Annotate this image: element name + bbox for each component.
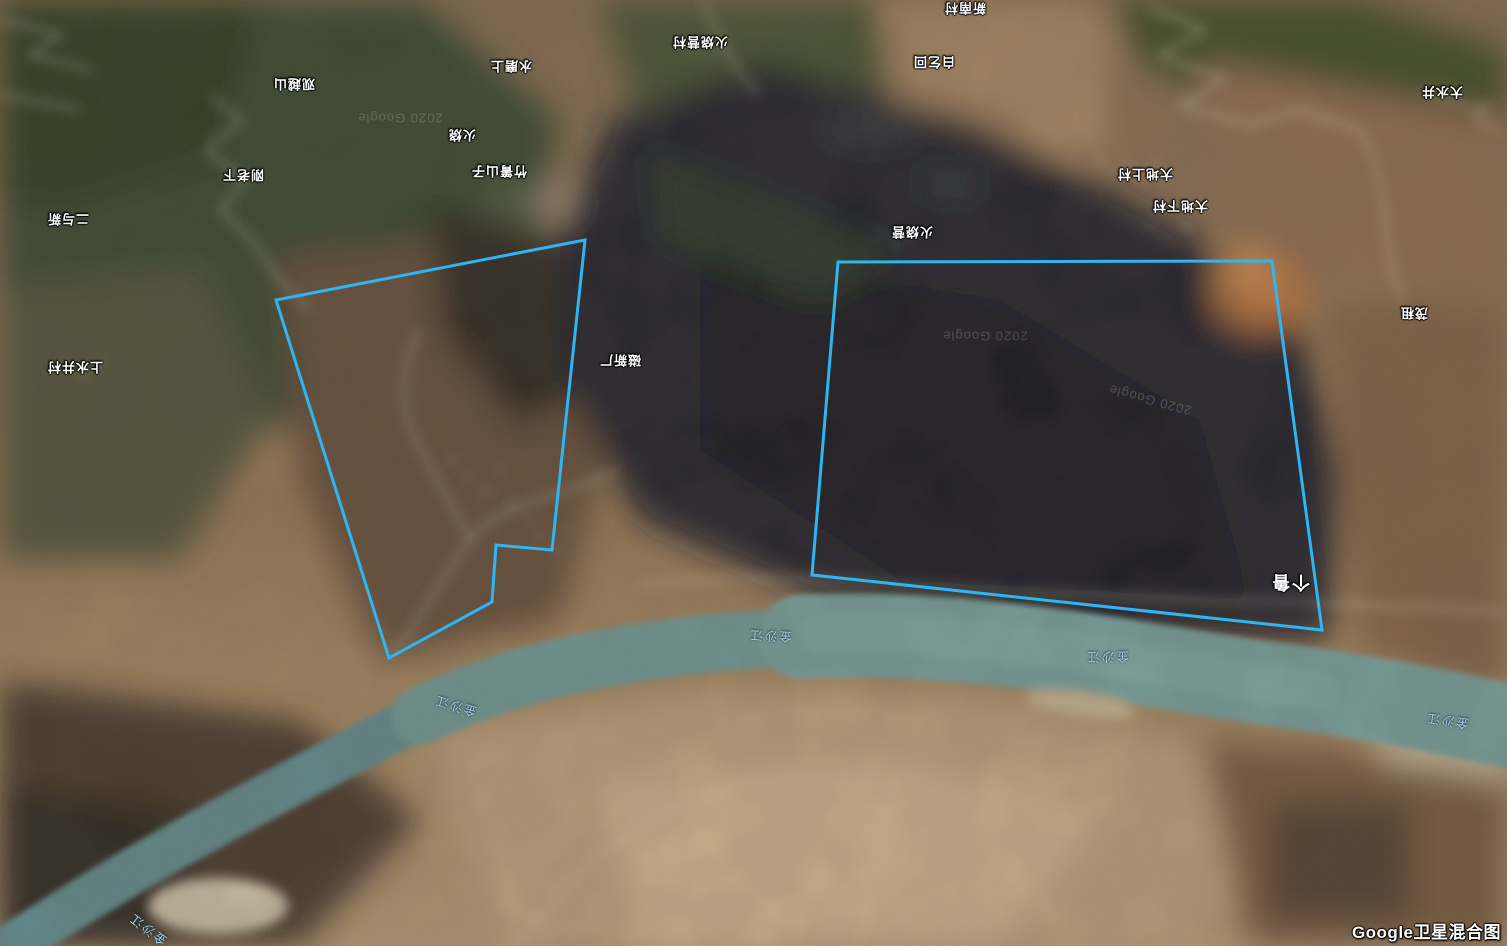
map-attribution: Google卫星混合图	[1352, 918, 1501, 943]
terrain-imagery	[0, 0, 1507, 946]
satellite-map-viewport[interactable]: 火烧营村新南村白乞回观越山刚老下二与新上水井村水磨上火烧竹箐山子磁新厂火烧营大地…	[0, 0, 1507, 946]
